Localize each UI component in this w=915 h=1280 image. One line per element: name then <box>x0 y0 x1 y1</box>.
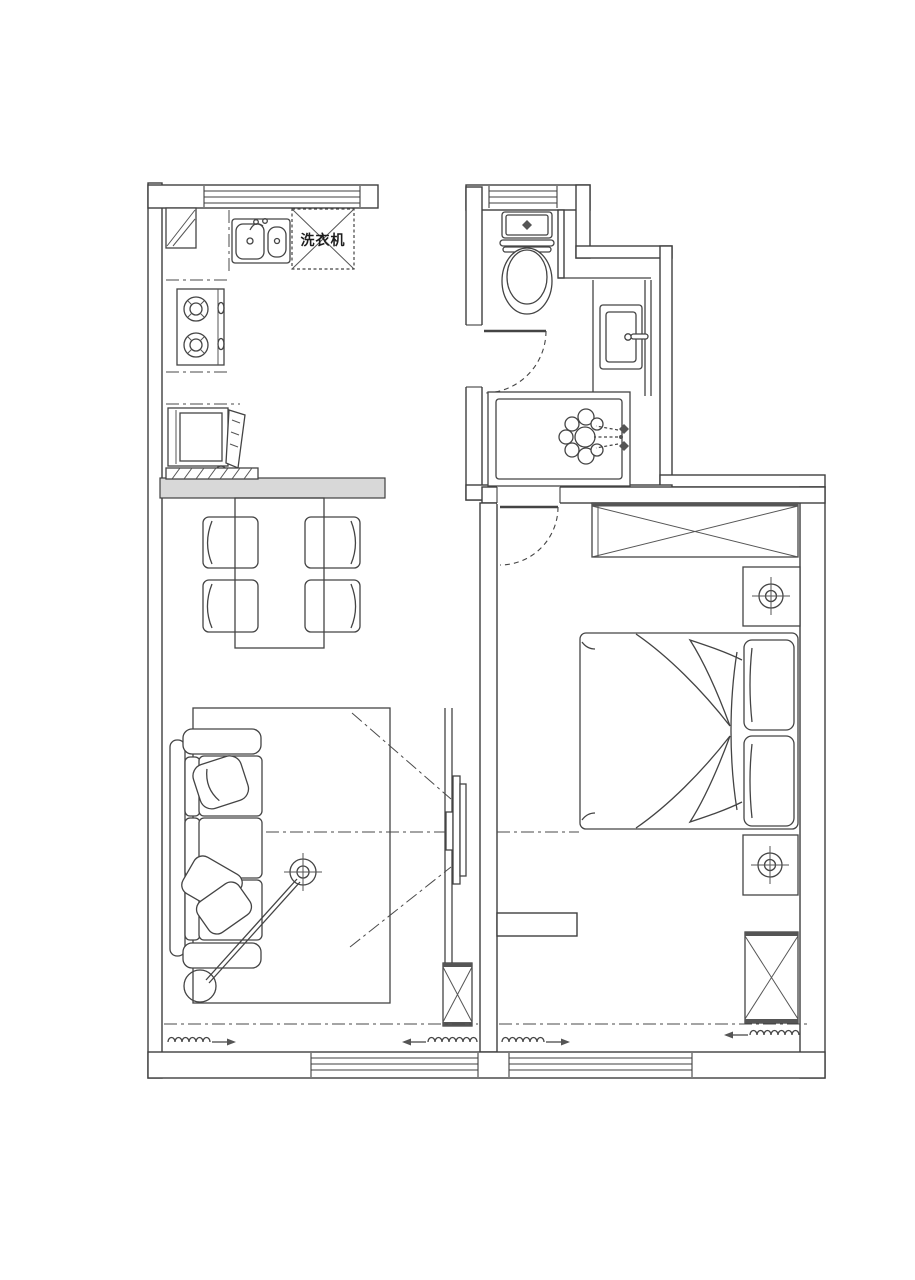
floor-plan-drawing: 洗衣机 <box>0 0 915 1280</box>
radiator-icon <box>402 1038 477 1046</box>
washing-machine-label: 洗衣机 <box>301 232 346 248</box>
refrigerator-icon <box>168 408 245 476</box>
nightstand <box>743 567 800 626</box>
bed <box>580 633 798 829</box>
dining-area <box>203 498 360 648</box>
wall-bedroom-west <box>480 503 497 1052</box>
wall-kitchen-dining-divider <box>160 478 385 498</box>
column <box>443 963 472 1026</box>
wall-step-lower <box>660 475 825 487</box>
wardrobe-corner-icon <box>745 932 798 1023</box>
sink-icon <box>232 219 290 263</box>
bedroom <box>497 503 800 1023</box>
gas-stove-icon <box>177 289 224 365</box>
bathroom-window <box>489 186 557 209</box>
wall-step-upper <box>576 246 672 258</box>
radiator-icon <box>724 1031 799 1039</box>
dining-chair <box>305 580 360 632</box>
dining-chair <box>203 517 258 568</box>
radiator-icon <box>502 1038 570 1046</box>
floor-plan: 洗衣机 <box>0 0 915 1280</box>
corner-cabinet-icon <box>166 208 196 248</box>
nightstand <box>743 835 798 895</box>
alcove-wall <box>558 210 564 278</box>
fridge-open-door <box>226 410 245 468</box>
tv <box>446 776 466 884</box>
sofa <box>170 729 262 968</box>
wall-east-mid <box>660 246 672 487</box>
wall-left-outer <box>148 183 162 1078</box>
sight-line <box>352 713 451 799</box>
toilet-icon <box>500 212 554 314</box>
wall-bedroom-stub <box>497 913 577 936</box>
wall-bottom-outer <box>148 1052 825 1078</box>
sight-line <box>350 867 451 947</box>
bedroom-window <box>509 1053 692 1077</box>
radiator-icon <box>168 1038 236 1046</box>
living-room <box>170 708 472 1026</box>
vanity-sink-icon <box>600 305 648 369</box>
kitchen: 洗衣机 <box>166 208 354 479</box>
door-swing-arc <box>500 507 558 565</box>
wardrobe-top-icon <box>592 503 798 557</box>
counter-hatch-band <box>166 468 258 479</box>
living-room-window <box>311 1053 478 1077</box>
door-swing-arc <box>484 331 546 393</box>
dining-chair <box>203 580 258 632</box>
wall-right-outer <box>800 487 825 1078</box>
bedroom-door <box>497 486 560 565</box>
bathtub-icon <box>488 392 630 486</box>
kitchen-window <box>204 186 360 207</box>
washing-machine-icon: 洗衣机 <box>292 209 354 269</box>
dining-chair <box>305 517 360 568</box>
bathroom-door <box>465 325 546 393</box>
